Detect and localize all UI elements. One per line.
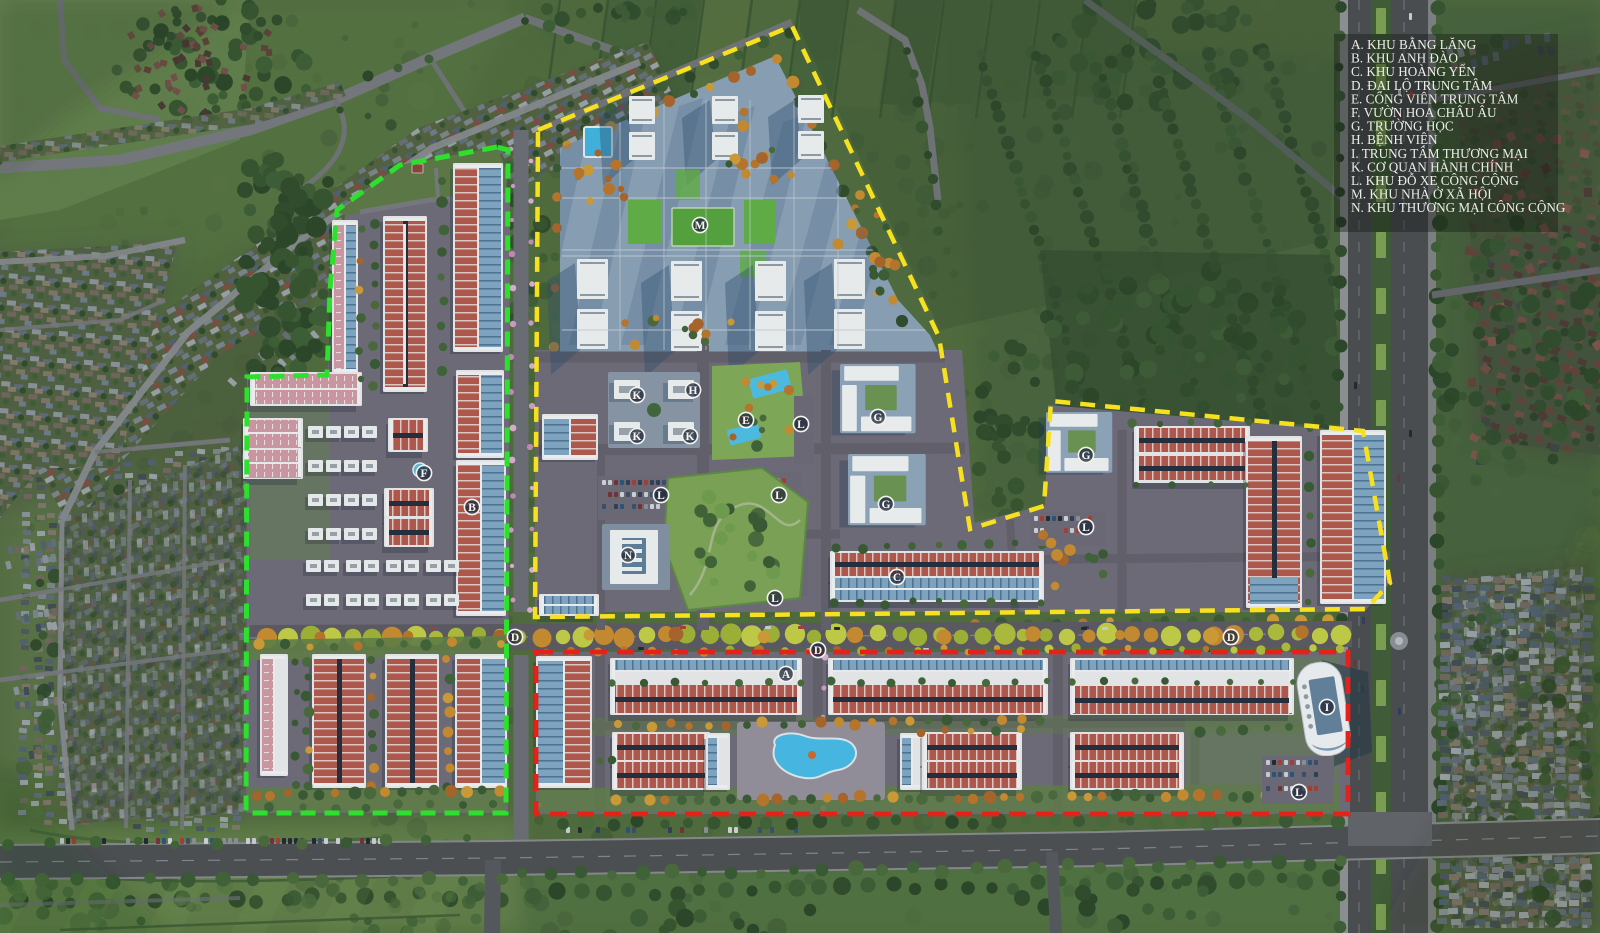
- svg-text:L: L: [1082, 522, 1090, 534]
- svg-text:L: L: [771, 593, 779, 605]
- svg-text:I: I: [1325, 702, 1330, 714]
- svg-text:M: M: [695, 220, 706, 232]
- svg-text:E: E: [742, 415, 750, 427]
- svg-text:B: B: [468, 502, 476, 514]
- svg-text:D: D: [1227, 632, 1235, 644]
- svg-text:K: K: [686, 431, 695, 443]
- svg-text:F: F: [420, 468, 427, 480]
- svg-text:G: G: [882, 499, 891, 511]
- svg-text:C: C: [893, 572, 901, 584]
- svg-text:L: L: [1295, 787, 1303, 799]
- svg-text:L: L: [775, 490, 783, 502]
- svg-text:L: L: [797, 419, 805, 431]
- svg-text:N: N: [624, 550, 633, 562]
- svg-text:L: L: [657, 490, 665, 502]
- svg-text:G: G: [874, 412, 883, 424]
- svg-text:A: A: [782, 669, 791, 681]
- svg-text:D: D: [511, 632, 519, 644]
- svg-text:K: K: [633, 390, 642, 402]
- svg-text:K: K: [633, 431, 642, 443]
- svg-text:H: H: [689, 385, 698, 397]
- svg-text:D: D: [814, 645, 822, 657]
- svg-text:G: G: [1082, 450, 1091, 462]
